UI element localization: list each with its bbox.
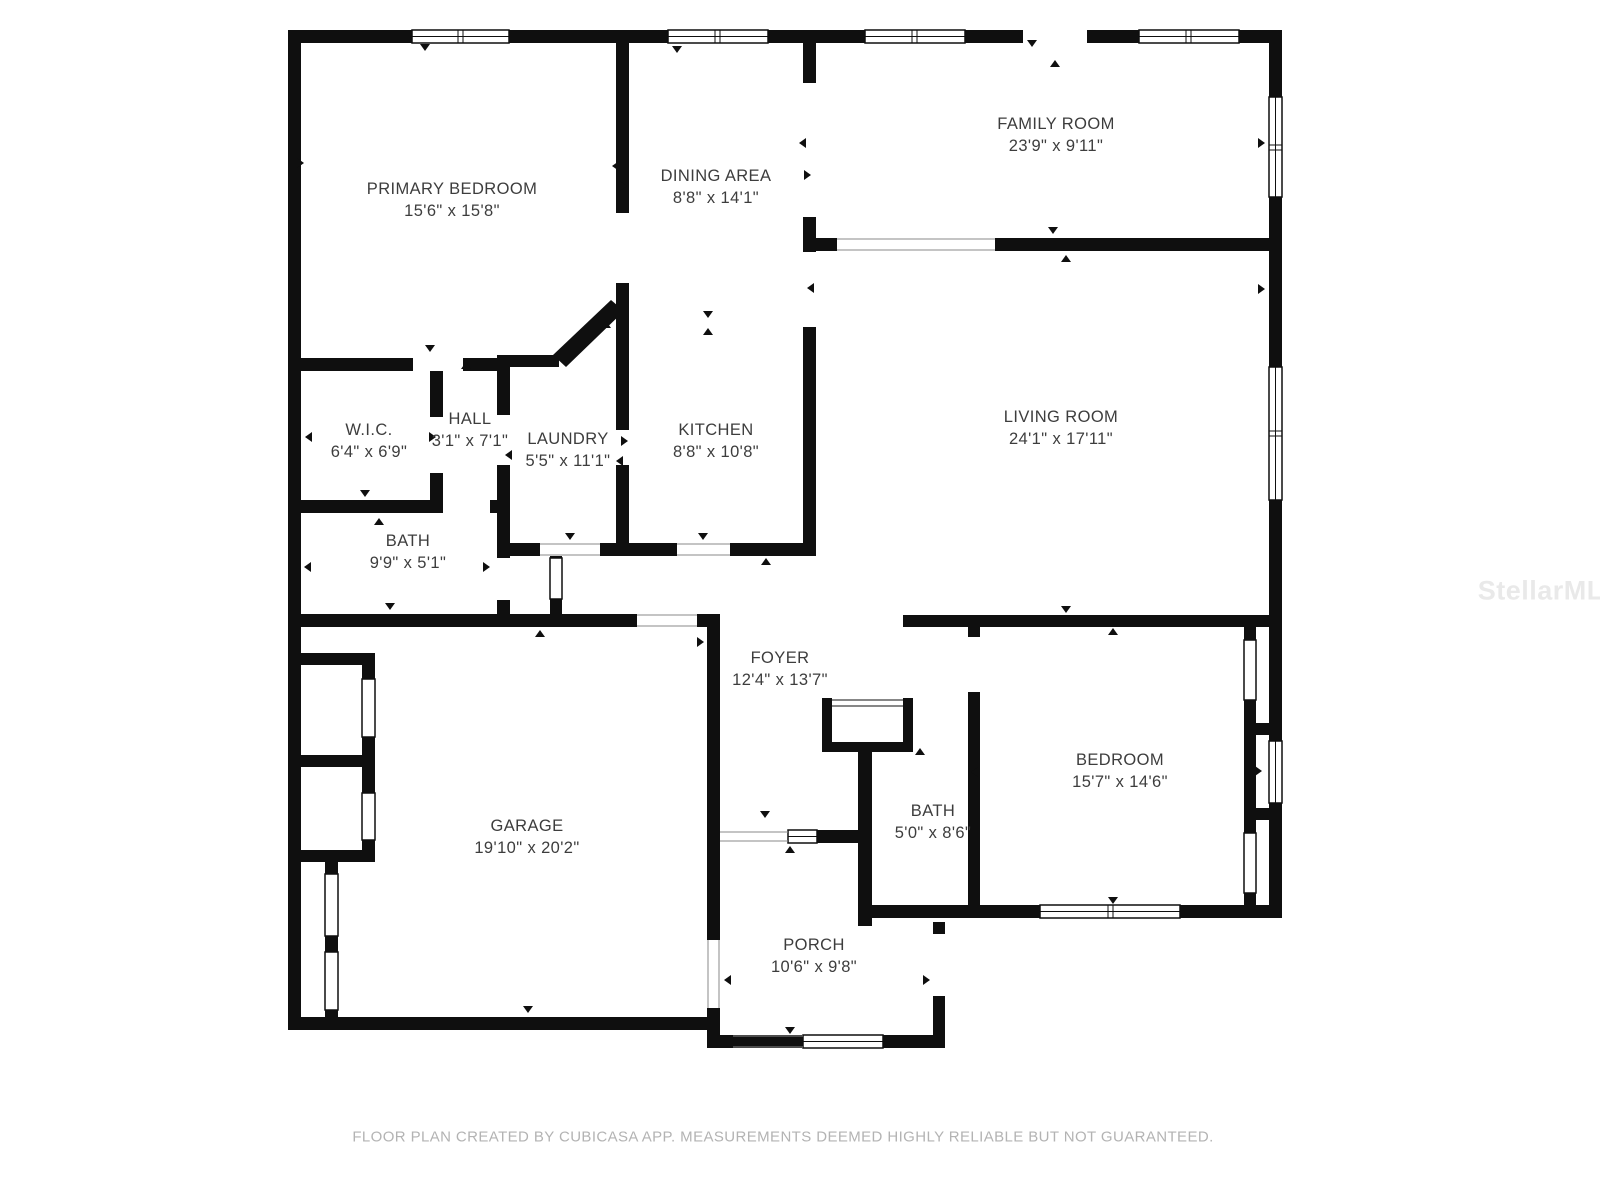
closet-door-garage-1 — [362, 679, 375, 737]
closet-door-garage-3 — [325, 874, 338, 936]
room-dimensions: 9'9" x 5'1" — [370, 552, 447, 574]
window-right-2 — [1269, 367, 1282, 500]
window-right-1 — [1269, 97, 1282, 197]
room-label-dining-area: DINING AREA 8'8" x 14'1" — [661, 165, 772, 209]
opening-family-bottom — [837, 238, 995, 251]
closet-door-garage-4 — [325, 952, 338, 1010]
room-name: BEDROOM — [1072, 749, 1168, 771]
room-dimensions: 5'5" x 11'1" — [526, 450, 611, 472]
room-dimensions: 3'1" x 7'1" — [432, 430, 509, 452]
room-name: PORCH — [771, 934, 857, 956]
room-dimensions: 15'7" x 14'6" — [1072, 771, 1168, 793]
opening-foyer-porch — [720, 832, 788, 841]
closet-door-bedroom-1 — [1244, 640, 1256, 700]
window-bedroom-right — [1269, 741, 1282, 803]
room-dimensions: 24'1" x 17'11" — [1004, 428, 1118, 450]
room-dimensions: 23'9" x 9'11" — [997, 135, 1114, 157]
room-label-bath-2: BATH 5'0" x 8'6" — [895, 800, 972, 844]
window-porch — [803, 1035, 883, 1048]
room-dimensions: 19'10" x 20'2" — [474, 837, 579, 859]
room-label-kitchen: KITCHEN 8'8" x 10'8" — [673, 419, 759, 463]
window-top-3 — [865, 30, 965, 43]
room-name: HALL — [432, 408, 509, 430]
opening-kitchen-2 — [677, 543, 730, 556]
opening-garage-entry — [637, 614, 697, 627]
room-label-family-room: FAMILY ROOM 23'9" x 9'11" — [997, 113, 1114, 157]
room-label-hall: HALL 3'1" x 7'1" — [432, 408, 509, 452]
footer-disclaimer: FLOOR PLAN CREATED BY CUBICASA APP. MEAS… — [352, 1129, 1213, 1146]
room-dimensions: 12'4" x 13'7" — [732, 669, 828, 691]
room-label-garage: GARAGE 19'10" x 20'2" — [474, 815, 579, 859]
room-label-bedroom: BEDROOM 15'7" x 14'6" — [1072, 749, 1168, 793]
window-top-4 — [1139, 30, 1239, 43]
room-name: BATH — [370, 530, 447, 552]
room-label-wic: W.I.C. 6'4" x 6'9" — [331, 419, 408, 463]
room-name: W.I.C. — [331, 419, 408, 441]
room-label-living-room: LIVING ROOM 24'1" x 17'11" — [1004, 406, 1118, 450]
closet-door-bedroom-2 — [1244, 833, 1256, 893]
room-name: BATH — [895, 800, 972, 822]
window-front-sidelight — [788, 830, 817, 843]
room-name: PRIMARY BEDROOM — [367, 178, 537, 200]
closet-door-foyer — [832, 700, 903, 706]
room-dimensions: 8'8" x 14'1" — [661, 187, 772, 209]
stellar-mls-watermark: StellarMLS — [1478, 576, 1600, 607]
opening-kitchen-1 — [540, 543, 600, 556]
room-dimensions: 15'6" x 15'8" — [367, 200, 537, 222]
room-dimensions: 5'0" x 8'6" — [895, 822, 972, 844]
floor-plan-page: PRIMARY BEDROOM 15'6" x 15'8" DINING ARE… — [0, 0, 1600, 1200]
room-label-porch: PORCH 10'6" x 9'8" — [771, 934, 857, 978]
room-name: FOYER — [732, 647, 828, 669]
room-label-primary-bedroom: PRIMARY BEDROOM 15'6" x 15'8" — [367, 178, 537, 222]
window-bedroom-bottom — [1040, 905, 1180, 918]
room-name: GARAGE — [474, 815, 579, 837]
window-top-2 — [668, 30, 768, 43]
closet-door-garage-2 — [362, 793, 375, 840]
room-name: FAMILY ROOM — [997, 113, 1114, 135]
room-dimensions: 10'6" x 9'8" — [771, 956, 857, 978]
opening-garage-side — [707, 940, 720, 1008]
room-label-foyer: FOYER 12'4" x 13'7" — [732, 647, 828, 691]
room-name: LAUNDRY — [526, 428, 611, 450]
room-label-laundry: LAUNDRY 5'5" x 11'1" — [526, 428, 611, 472]
pocket-door-hall — [550, 558, 562, 599]
room-dimensions: 6'4" x 6'9" — [331, 441, 408, 463]
room-label-bath-1: BATH 9'9" x 5'1" — [370, 530, 447, 574]
window-top-1 — [412, 30, 509, 43]
door-gaps-layer — [413, 83, 816, 600]
floor-plan-drawing — [0, 0, 1600, 1200]
room-dimensions: 8'8" x 10'8" — [673, 441, 759, 463]
room-name: LIVING ROOM — [1004, 406, 1118, 428]
room-name: DINING AREA — [661, 165, 772, 187]
room-name: KITCHEN — [673, 419, 759, 441]
